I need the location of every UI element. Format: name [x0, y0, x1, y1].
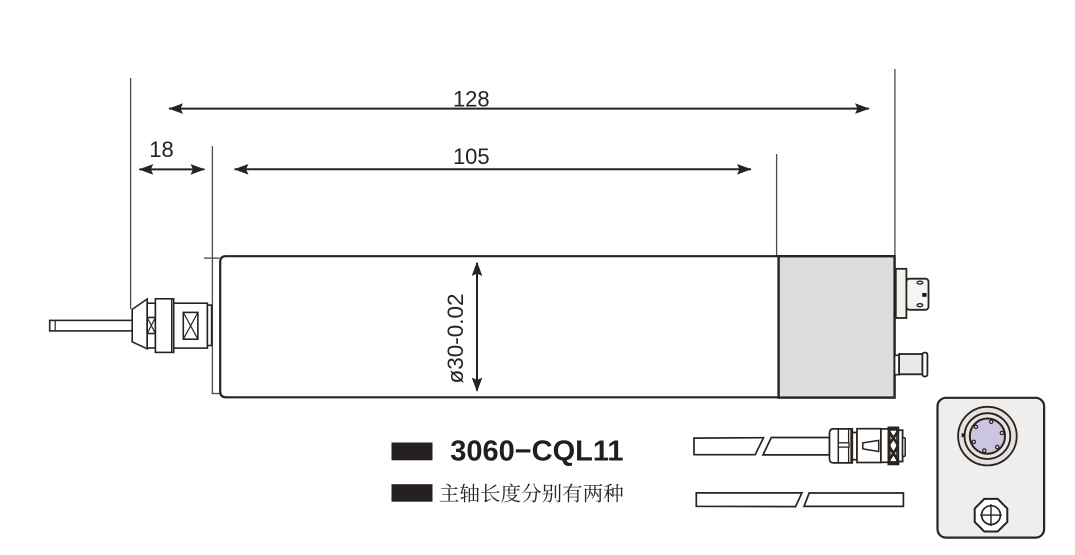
svg-text:18: 18 — [149, 137, 173, 162]
svg-text:ø30-0.02: ø30-0.02 — [443, 293, 468, 383]
svg-text:3060−CQL11: 3060−CQL11 — [450, 436, 623, 468]
svg-text:128: 128 — [453, 86, 490, 111]
svg-text:105: 105 — [453, 144, 490, 169]
